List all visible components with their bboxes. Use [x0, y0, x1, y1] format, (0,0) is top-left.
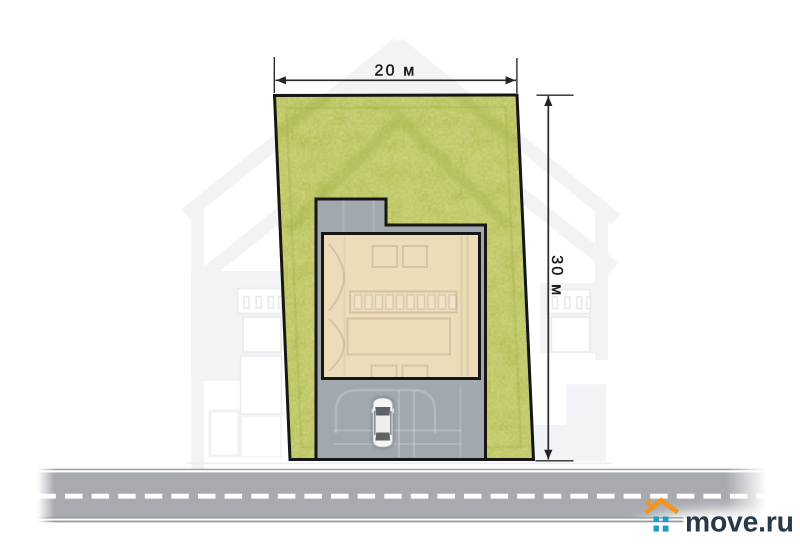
svg-text:move.ru: move.ru [685, 506, 794, 538]
svg-text:30 м: 30 м [548, 255, 565, 297]
svg-text:20 м: 20 м [374, 63, 416, 80]
